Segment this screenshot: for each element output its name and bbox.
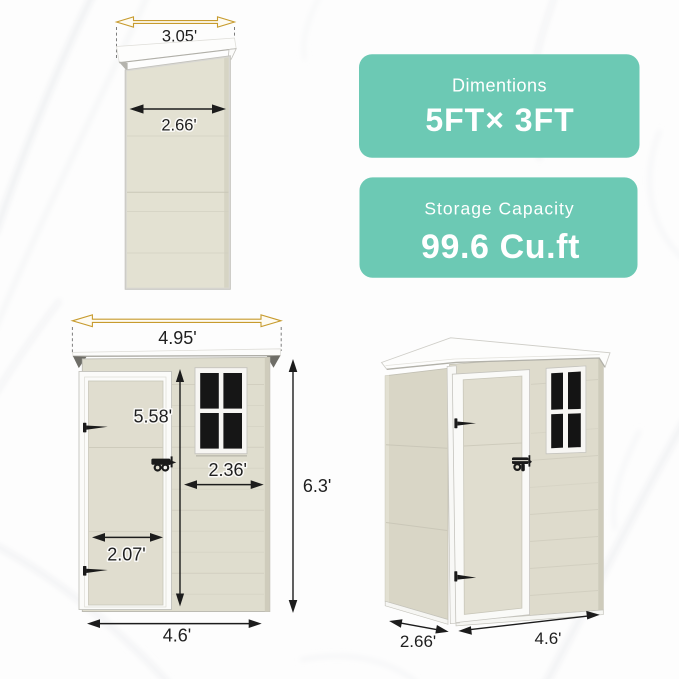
svg-text:2.66': 2.66'	[400, 632, 436, 651]
svg-text:4.6': 4.6'	[163, 626, 191, 646]
svg-text:2.66': 2.66'	[161, 117, 196, 135]
svg-text:5FT× 3FT: 5FT× 3FT	[425, 102, 574, 138]
svg-text:6.3': 6.3'	[303, 476, 331, 496]
svg-text:2.07': 2.07'	[107, 544, 145, 564]
svg-text:Storage Capacity: Storage Capacity	[424, 199, 574, 219]
svg-text:99.6 Cu.ft: 99.6 Cu.ft	[421, 228, 580, 266]
svg-text:5.58': 5.58'	[134, 406, 172, 426]
svg-text:2.36': 2.36'	[208, 460, 246, 480]
svg-text:Dimentions: Dimentions	[452, 76, 547, 96]
svg-text:4.6': 4.6'	[535, 629, 562, 648]
svg-text:4.95': 4.95'	[158, 328, 196, 348]
